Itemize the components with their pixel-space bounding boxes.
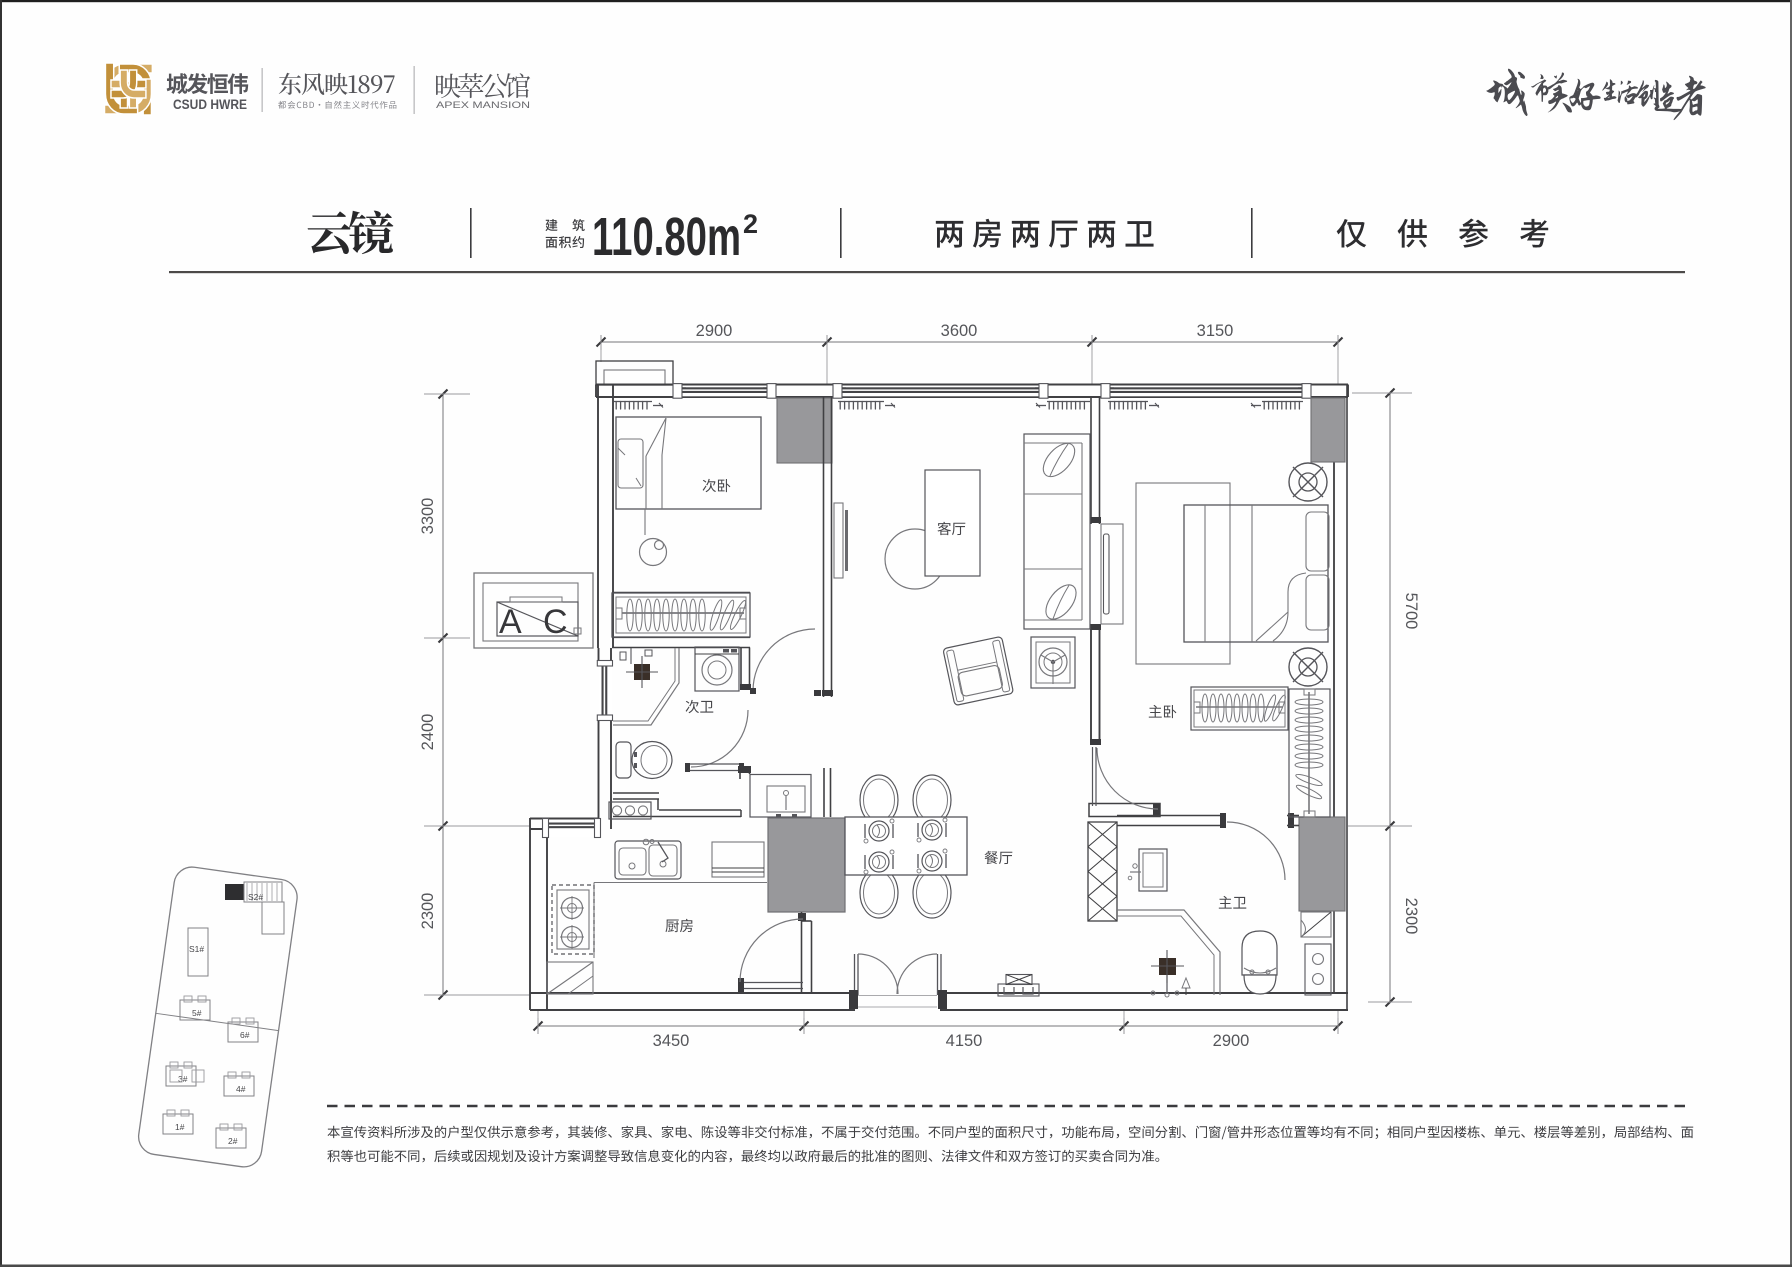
- svg-text:2400: 2400: [419, 714, 437, 751]
- svg-text:110.80m: 110.80m: [592, 207, 741, 267]
- svg-text:1#: 1#: [175, 1122, 185, 1132]
- svg-text:2#: 2#: [228, 1136, 238, 1146]
- svg-text:4#: 4#: [236, 1084, 246, 1094]
- svg-text:3600: 3600: [941, 322, 978, 340]
- svg-text:CSUD HWRE: CSUD HWRE: [173, 97, 247, 112]
- svg-text:3150: 3150: [1197, 322, 1234, 340]
- svg-text:A: A: [499, 603, 522, 641]
- svg-text:2900: 2900: [696, 322, 733, 340]
- svg-text:2900: 2900: [1213, 1032, 1250, 1050]
- svg-text:3#: 3#: [178, 1074, 188, 1084]
- svg-text:2: 2: [743, 209, 758, 239]
- svg-text:2300: 2300: [1402, 898, 1420, 935]
- svg-text:C: C: [543, 603, 568, 641]
- svg-text:5#: 5#: [192, 1008, 202, 1018]
- svg-text:2300: 2300: [419, 893, 437, 930]
- svg-text:APEX MANSION: APEX MANSION: [436, 100, 530, 110]
- svg-text:S1#: S1#: [189, 944, 204, 954]
- svg-text:5700: 5700: [1402, 593, 1420, 630]
- svg-text:6#: 6#: [240, 1030, 250, 1040]
- svg-text:4150: 4150: [946, 1032, 983, 1050]
- svg-text:S2#: S2#: [248, 892, 263, 902]
- svg-text:3300: 3300: [419, 498, 437, 535]
- svg-text:3450: 3450: [653, 1032, 690, 1050]
